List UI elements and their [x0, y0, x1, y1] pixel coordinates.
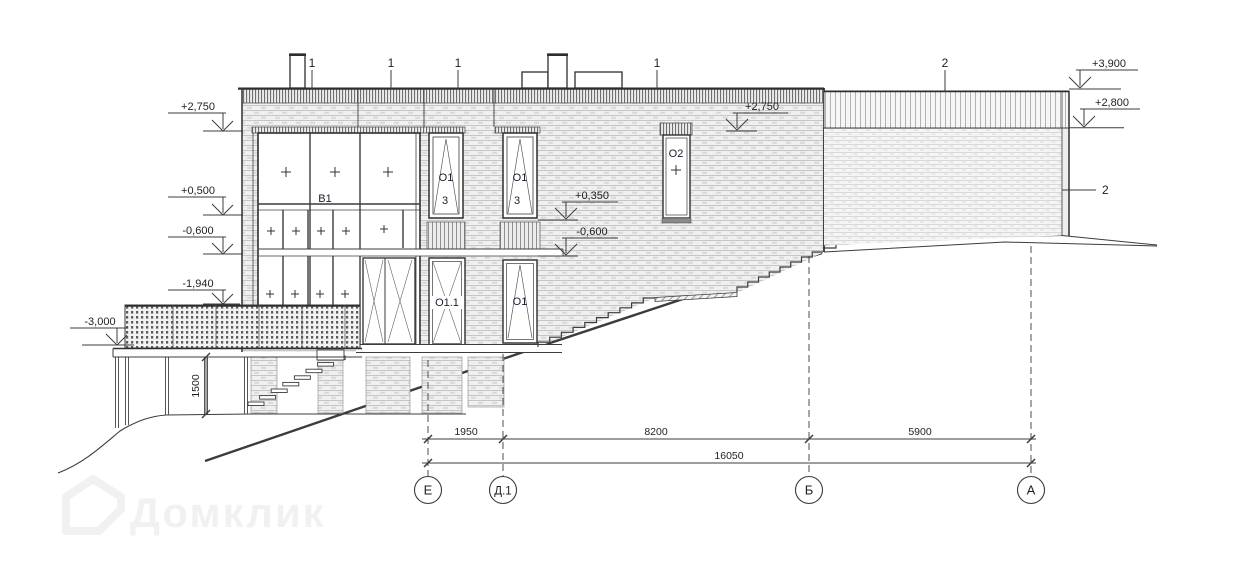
axis-top-label: 1 [654, 56, 661, 70]
stair-landing [317, 350, 344, 360]
spandrel-panel [427, 222, 465, 253]
window-label-o1: О1 [439, 172, 454, 184]
floor-slab-band [259, 249, 563, 256]
base-band [356, 345, 562, 353]
chimney-icon [522, 72, 548, 88]
chimney-icon [548, 54, 567, 88]
level-label: +2,750 [745, 101, 779, 113]
window-o2: О2 [662, 135, 691, 223]
axis-label-b: Б [805, 483, 814, 498]
architectural-elevation-page: Домклик [0, 0, 1238, 568]
terrace [113, 305, 362, 357]
axis-top-label: 1 [388, 56, 395, 70]
axis-label-e: Е [424, 483, 433, 498]
fascia-band [824, 91, 1069, 128]
level-label: +0,350 [575, 190, 609, 202]
lintel-band-b1 [252, 127, 465, 133]
right-building: 2 [824, 91, 1109, 246]
chimney-icon [290, 54, 305, 88]
window-label-o2: О2 [669, 148, 684, 160]
elevation-drawing-canvas: Домклик [0, 0, 1238, 568]
level-label: +2,800 [1095, 97, 1129, 109]
axis-top-label: 1 [309, 56, 316, 70]
chimney-icon [575, 72, 622, 88]
axis-label-d1: Д.1 [494, 486, 511, 498]
lintel-band-o1 [495, 127, 540, 133]
level-label: +0,500 [181, 185, 215, 197]
window-label-o1: О1 [513, 172, 528, 184]
watermark-text: Домклик [130, 489, 326, 536]
window-o1-upper-1: О1 3 [429, 133, 463, 218]
wall-ref-label: 2 [1102, 183, 1109, 197]
window-label-o1: О1 [513, 296, 528, 308]
door-o11: О1.1 [429, 258, 465, 347]
axis-top-label: 1 [455, 56, 462, 70]
window-o1-upper-2: О1 3 [503, 133, 537, 218]
foundation-brick [366, 357, 410, 413]
casement-windows-lower [363, 258, 415, 344]
level-label: +2,750 [181, 101, 215, 113]
right-wall-strip [1062, 128, 1069, 235]
axis-top-label: 2 [942, 56, 949, 70]
slab-fill [259, 249, 563, 256]
right-building-brick-wall [824, 128, 1062, 246]
door-label-o11: О1.1 [435, 297, 459, 309]
lintel-band-o2 [660, 123, 692, 135]
foundation-brick [468, 357, 504, 407]
base-fill [356, 345, 562, 353]
level-label: -3,000 [84, 316, 115, 328]
window-label-b1: В1 [318, 193, 331, 205]
parapet-coping-band [242, 89, 824, 103]
dim-label-5900: 5900 [908, 426, 932, 438]
spandrel-panel [500, 222, 540, 253]
dim-label-16050: 16050 [714, 450, 743, 462]
level-label: -0,600 [576, 226, 607, 238]
axis-label-a: А [1027, 483, 1036, 498]
dim-label-1950: 1950 [454, 426, 478, 438]
level-label: -0,600 [182, 225, 213, 237]
window-o1-lower: О1 [503, 260, 537, 343]
level-label: -1,940 [182, 278, 213, 290]
window-label-o1-num: 3 [514, 195, 520, 207]
terrace-railing [125, 305, 360, 348]
window-frame [363, 258, 415, 344]
dim-label-1500: 1500 [190, 374, 202, 398]
window-sill [662, 218, 691, 223]
dim-label-8200: 8200 [644, 426, 668, 438]
window-label-o1-num: 3 [442, 195, 448, 207]
level-label: +3,900 [1092, 58, 1126, 70]
